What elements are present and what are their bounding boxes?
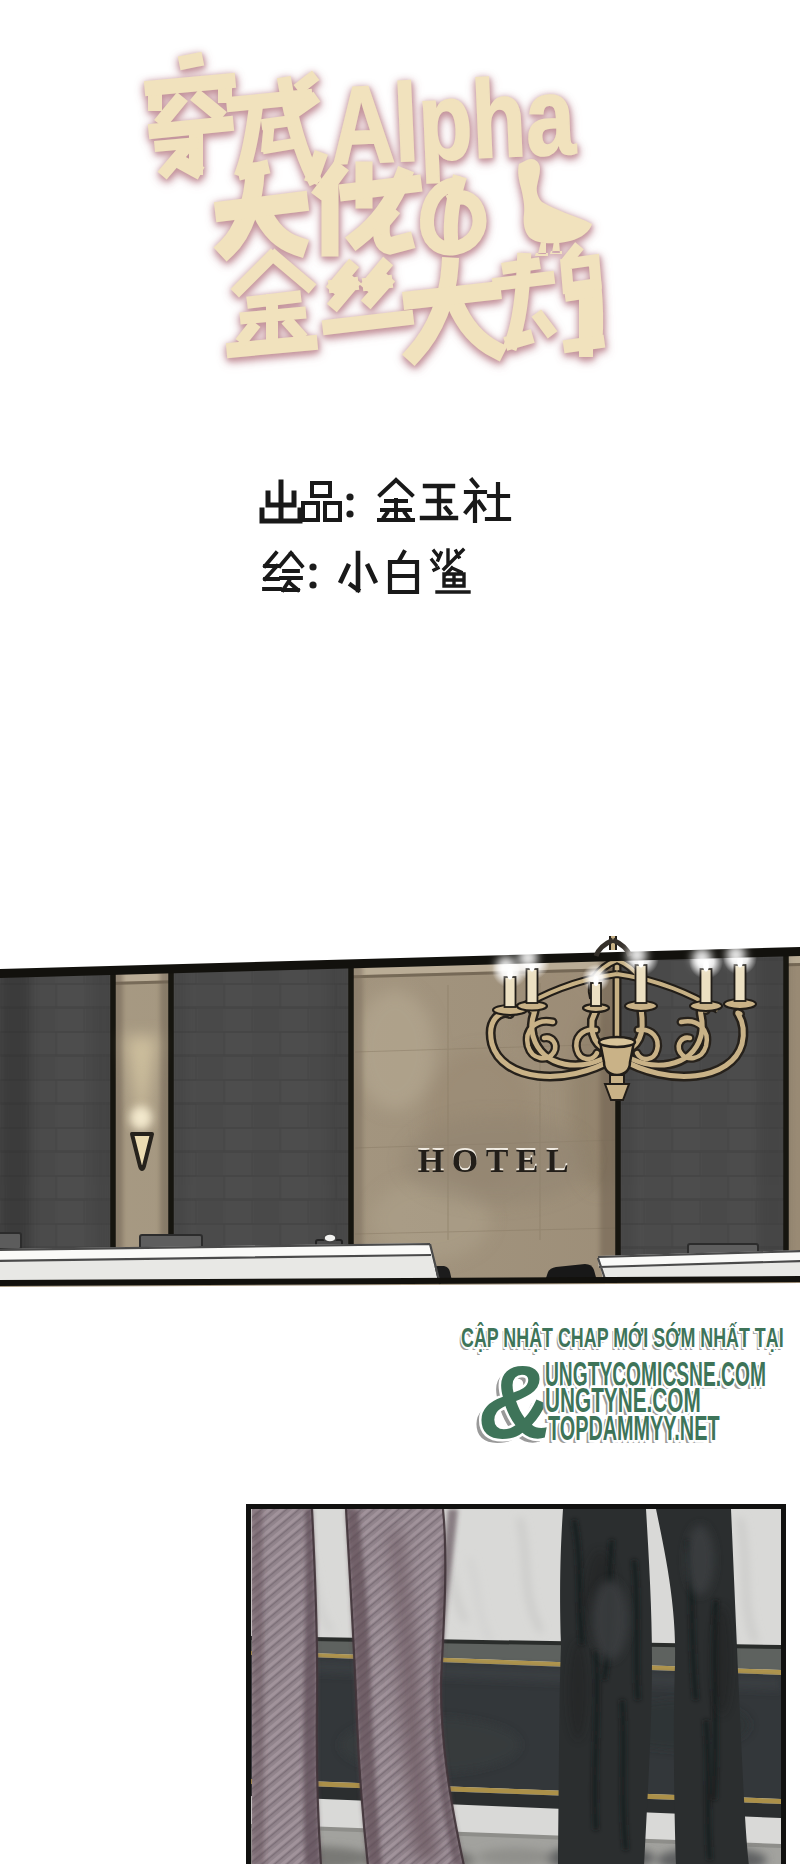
svg-text:TOPDAMMYY.NET: TOPDAMMYY.NET xyxy=(548,1408,720,1447)
svg-text:HOTEL: HOTEL xyxy=(418,1142,576,1179)
